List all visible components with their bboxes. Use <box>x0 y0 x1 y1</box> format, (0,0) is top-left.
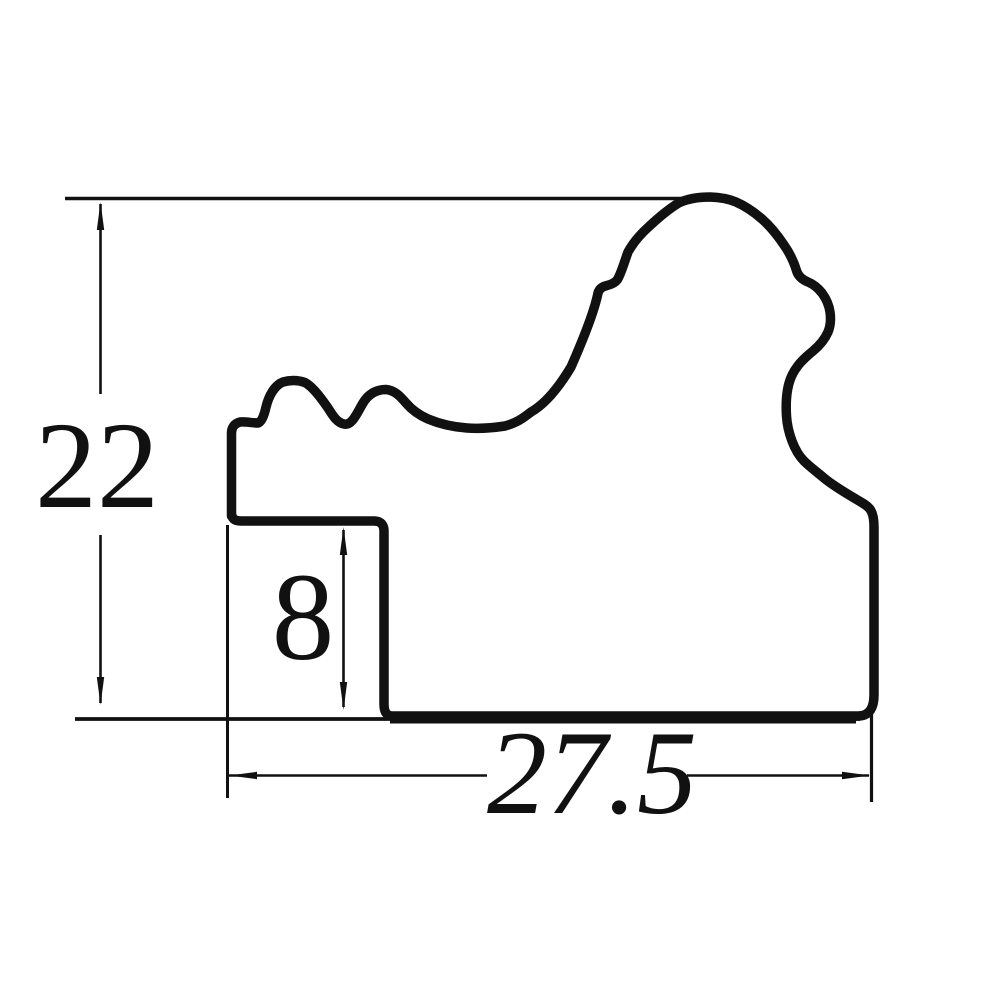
svg-text:27.5: 27.5 <box>487 706 697 839</box>
svg-text:22: 22 <box>35 397 159 534</box>
svg-text:8: 8 <box>272 549 335 687</box>
